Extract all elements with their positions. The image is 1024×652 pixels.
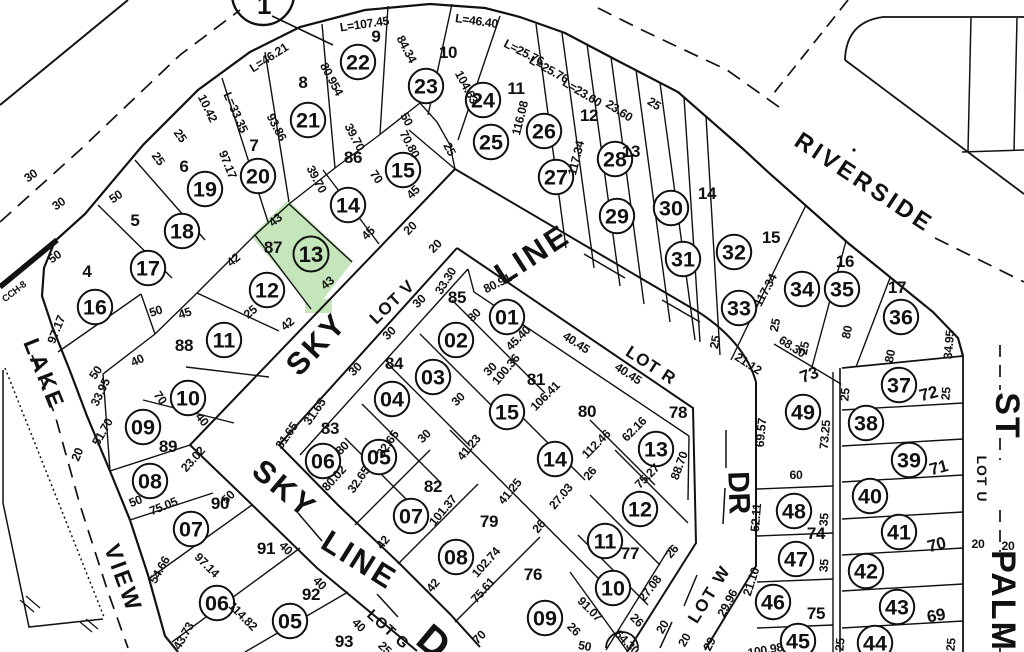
svg-text:35: 35: [816, 512, 831, 527]
svg-text:11: 11: [507, 79, 524, 98]
svg-text:23: 23: [414, 75, 438, 99]
svg-text:10: 10: [439, 43, 457, 62]
svg-text:12: 12: [255, 279, 279, 303]
svg-text:45: 45: [786, 630, 810, 652]
svg-text:17: 17: [136, 257, 160, 281]
svg-text:91: 91: [257, 539, 275, 558]
svg-text:40: 40: [858, 485, 882, 509]
svg-text:29: 29: [605, 205, 629, 229]
svg-text:88: 88: [175, 336, 193, 355]
svg-text:13: 13: [644, 438, 668, 462]
svg-text:44: 44: [863, 632, 887, 652]
svg-text:08: 08: [138, 470, 162, 494]
svg-text:84: 84: [385, 354, 404, 373]
svg-text:93: 93: [335, 632, 353, 651]
svg-text:13: 13: [299, 242, 323, 267]
svg-text:31: 31: [671, 248, 695, 272]
svg-text:15: 15: [495, 401, 519, 425]
svg-text:12: 12: [628, 498, 652, 522]
svg-text:17: 17: [888, 278, 906, 297]
svg-text:07: 07: [399, 505, 423, 529]
svg-text:07: 07: [179, 518, 203, 542]
svg-text:41: 41: [887, 521, 911, 545]
svg-text:79: 79: [480, 512, 498, 531]
svg-text:85: 85: [448, 288, 466, 307]
svg-text:09: 09: [131, 416, 155, 440]
svg-text:05: 05: [278, 610, 302, 634]
svg-text:81: 81: [527, 370, 545, 389]
svg-text:PALM: PALM: [984, 550, 1022, 652]
svg-text:20: 20: [972, 537, 985, 551]
svg-text:02: 02: [444, 329, 468, 353]
svg-text:20: 20: [246, 165, 270, 189]
svg-text:22: 22: [346, 51, 370, 75]
svg-text:10: 10: [601, 577, 625, 601]
svg-text:11: 11: [213, 329, 236, 353]
svg-text:08: 08: [444, 546, 468, 570]
svg-text:78: 78: [669, 403, 687, 422]
svg-text:26: 26: [532, 120, 556, 144]
svg-text:48: 48: [782, 500, 806, 524]
svg-text:12: 12: [580, 106, 598, 125]
svg-text:19: 19: [193, 178, 217, 202]
svg-text:76: 76: [524, 565, 542, 584]
svg-text:4: 4: [82, 262, 92, 281]
svg-text:75: 75: [807, 604, 825, 623]
svg-text:73.25: 73.25: [817, 419, 834, 450]
svg-text:35: 35: [816, 558, 831, 573]
svg-text:69.57: 69.57: [753, 417, 770, 448]
svg-text:10: 10: [176, 387, 200, 411]
svg-text:16: 16: [836, 252, 854, 271]
svg-text:DR: DR: [721, 471, 755, 515]
svg-text:46: 46: [761, 591, 785, 615]
svg-text:27: 27: [544, 166, 568, 190]
svg-text:82: 82: [424, 477, 442, 496]
svg-text:80: 80: [578, 402, 596, 421]
svg-text:30: 30: [659, 197, 683, 221]
svg-text:36: 36: [889, 306, 913, 330]
svg-text:14: 14: [543, 448, 567, 472]
svg-text:04: 04: [380, 388, 404, 412]
svg-text:16: 16: [83, 296, 107, 320]
svg-text:09: 09: [533, 607, 557, 631]
svg-text:50: 50: [577, 638, 593, 652]
svg-text:34.95: 34.95: [941, 329, 958, 360]
svg-text:25: 25: [938, 386, 953, 401]
svg-text:49: 49: [791, 401, 815, 425]
svg-text:ST: ST: [988, 392, 1024, 439]
svg-text:89: 89: [159, 437, 177, 456]
svg-text:14: 14: [336, 194, 360, 218]
svg-text:32: 32: [722, 241, 746, 265]
svg-text:21: 21: [296, 109, 320, 133]
svg-text:25: 25: [943, 637, 958, 652]
svg-text:15: 15: [391, 159, 415, 183]
svg-text:39: 39: [897, 449, 921, 473]
svg-text:LOT U: LOT U: [974, 456, 990, 503]
svg-text:13: 13: [622, 142, 640, 161]
svg-text:8: 8: [298, 73, 307, 92]
svg-text:1: 1: [257, 0, 271, 20]
svg-text:60: 60: [790, 468, 803, 482]
svg-text:5: 5: [130, 211, 139, 230]
svg-text:83: 83: [321, 419, 339, 438]
svg-text:6: 6: [179, 157, 188, 176]
svg-text:35: 35: [830, 278, 854, 302]
svg-text:18: 18: [170, 220, 194, 244]
svg-text:87: 87: [264, 238, 282, 257]
svg-text:43: 43: [885, 596, 909, 620]
svg-text:14: 14: [698, 184, 717, 203]
svg-text:38: 38: [854, 412, 878, 436]
svg-text:25: 25: [479, 131, 503, 155]
svg-text:25: 25: [832, 637, 847, 652]
svg-text:34: 34: [790, 278, 814, 302]
svg-text:01: 01: [495, 306, 519, 330]
svg-text:69: 69: [925, 605, 946, 627]
svg-text:33: 33: [727, 297, 751, 321]
svg-text:42: 42: [854, 560, 878, 584]
svg-text:15: 15: [762, 228, 780, 247]
svg-text:06: 06: [205, 592, 229, 616]
svg-text:11: 11: [594, 530, 617, 554]
svg-text:37: 37: [887, 374, 911, 398]
svg-text:7: 7: [249, 136, 258, 155]
svg-text:03: 03: [421, 366, 445, 390]
svg-text:25: 25: [837, 387, 852, 402]
svg-text:47: 47: [784, 548, 808, 572]
svg-text:77: 77: [621, 544, 639, 563]
